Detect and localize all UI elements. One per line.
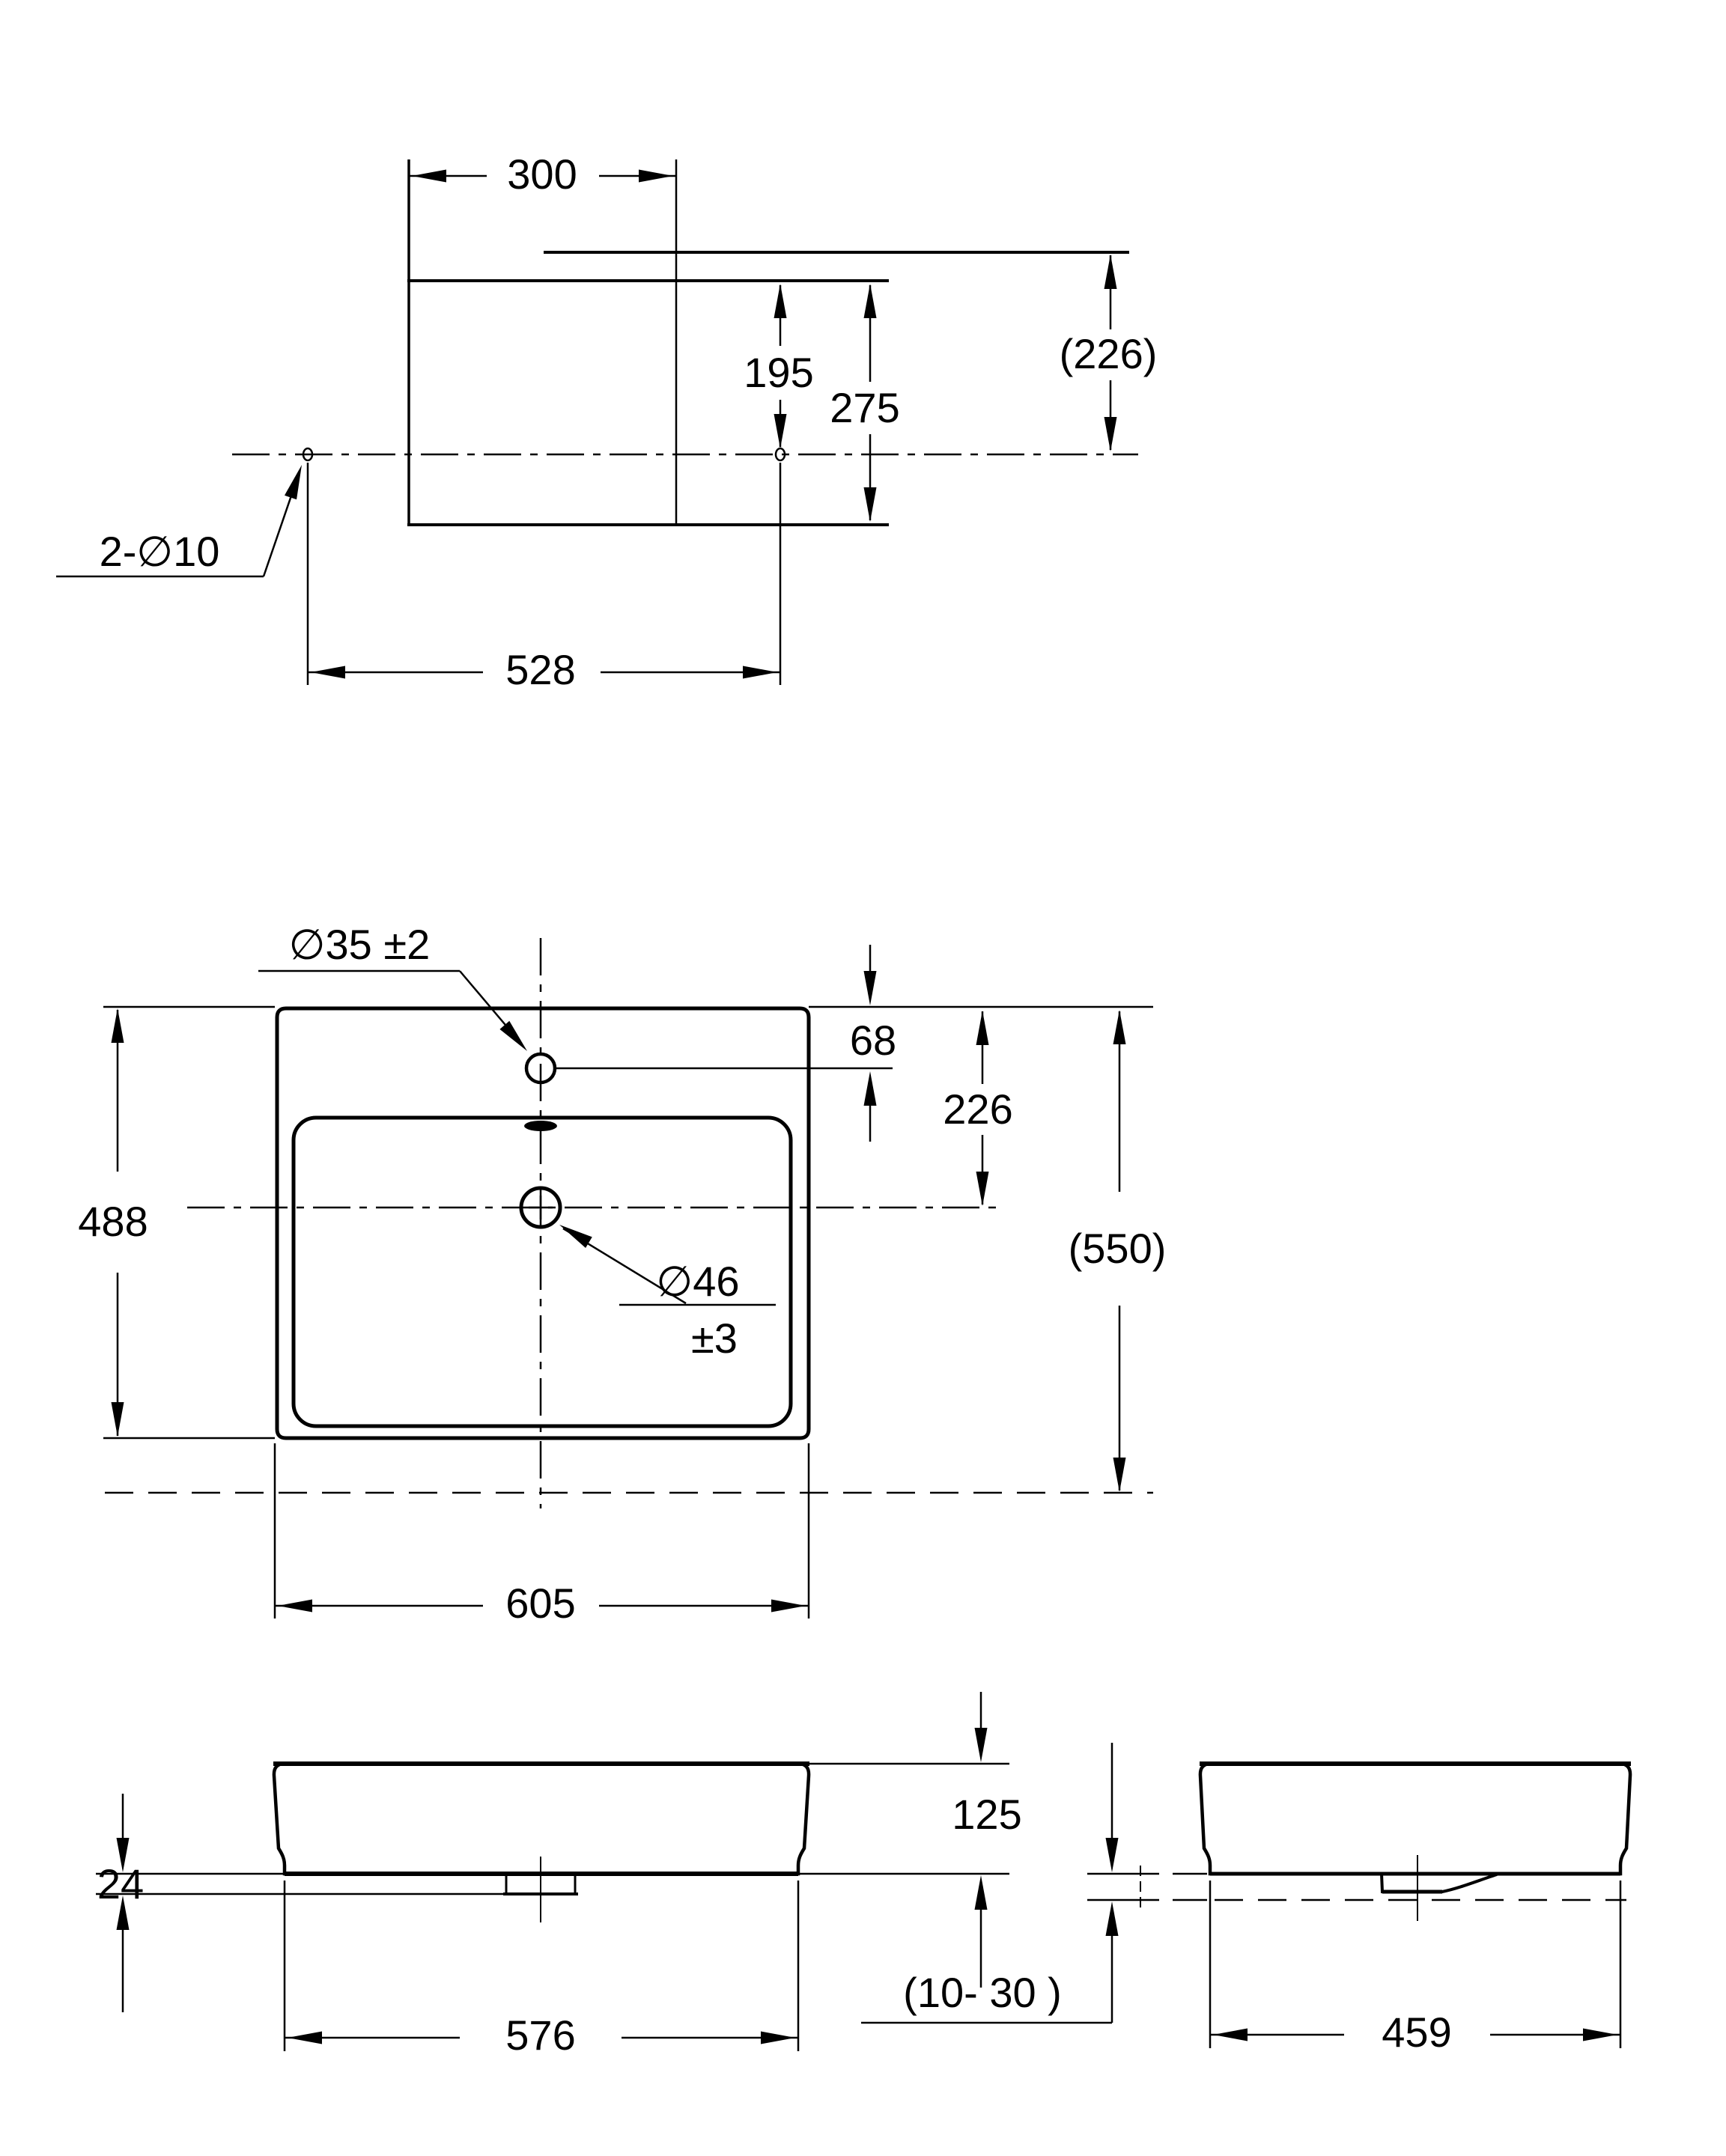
dim-226-plan: 226 bbox=[943, 1011, 1012, 1206]
dim-68: 68 bbox=[850, 945, 896, 1142]
label-d46-text: ∅46 bbox=[656, 1258, 739, 1305]
dim-488-label: 488 bbox=[78, 1198, 148, 1245]
dim-125: 125 bbox=[952, 1692, 1021, 1988]
dim-459-label: 459 bbox=[1382, 2009, 1451, 2056]
view-plan: ∅35 ±2 68 226 488 bbox=[78, 921, 1166, 1627]
technical-drawing-page: 300 195 275 (226) 2-∅10 bbox=[0, 0, 1726, 2156]
side-drain-recess bbox=[1382, 1874, 1497, 1892]
side-body-outline bbox=[1200, 1764, 1630, 1874]
label-d35-text: ∅35 ±2 bbox=[289, 921, 431, 968]
label-d46: ∅46 ±3 bbox=[556, 1219, 776, 1362]
dim-576-label: 576 bbox=[505, 2012, 575, 2059]
dim-275: 275 bbox=[830, 284, 899, 522]
dim-226-top: (226) bbox=[1060, 255, 1158, 451]
dim-300-label: 300 bbox=[507, 150, 577, 198]
dim-300: 300 bbox=[409, 150, 676, 198]
dim-488: 488 bbox=[78, 1008, 148, 1437]
washbasin-dimension-drawing: 300 195 275 (226) 2-∅10 bbox=[0, 0, 1726, 2156]
dim-195-label: 195 bbox=[744, 349, 813, 396]
dim-226-top-label: (226) bbox=[1060, 330, 1158, 377]
basin-outer-outline bbox=[277, 1008, 809, 1438]
view-front: 24 125 576 bbox=[96, 1692, 1022, 2059]
label-2x-d10: 2-∅10 bbox=[56, 463, 308, 576]
dim-528-label: 528 bbox=[505, 646, 575, 693]
dim-275-label: 275 bbox=[830, 384, 899, 431]
dim-195: 195 bbox=[744, 284, 813, 448]
dim-10-30-label: (10- 30 ) bbox=[903, 1969, 1062, 2016]
label-d35: ∅35 ±2 bbox=[258, 921, 532, 1056]
dim-459: 459 bbox=[1210, 1881, 1620, 2056]
dim-550: (550) bbox=[1069, 1010, 1167, 1492]
label-d46-tol-text: ±3 bbox=[691, 1315, 738, 1362]
dim-550-label: (550) bbox=[1069, 1225, 1167, 1272]
dim-68-label: 68 bbox=[850, 1017, 896, 1064]
dim-10-30: (10- 30 ) bbox=[861, 1743, 1119, 2023]
dim-605-label: 605 bbox=[505, 1580, 575, 1627]
dim-24: 24 bbox=[97, 1794, 144, 2012]
dim-605: 605 bbox=[275, 1443, 809, 1627]
label-2x-d10-text: 2-∅10 bbox=[100, 528, 220, 575]
dim-125-label: 125 bbox=[952, 1791, 1021, 1838]
view-top-install: 300 195 275 (226) 2-∅10 bbox=[56, 150, 1157, 693]
dim-226-plan-label: 226 bbox=[943, 1085, 1012, 1133]
dim-24-label: 24 bbox=[97, 1860, 144, 1907]
dim-528: 528 bbox=[308, 463, 780, 693]
